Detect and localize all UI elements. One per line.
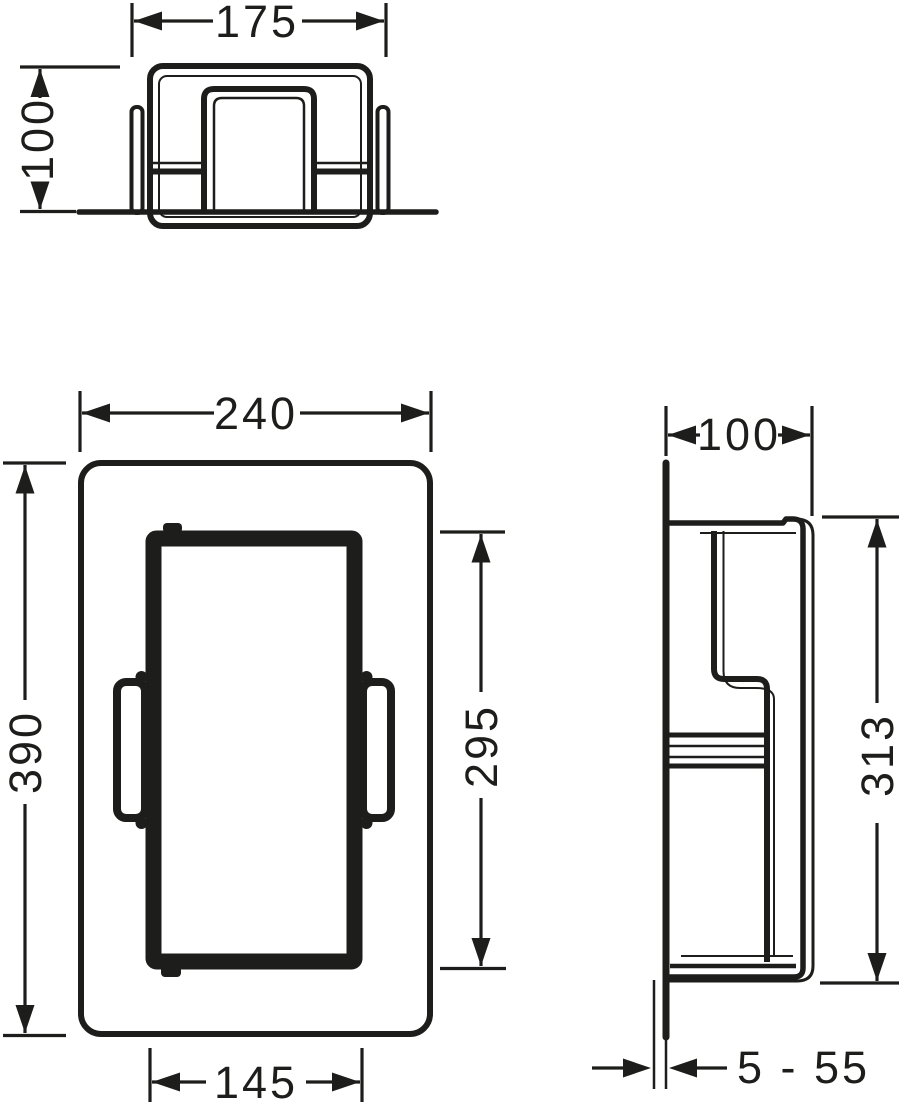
arrowhead-down: [16, 1005, 35, 1033]
front-top-tab: [163, 523, 182, 533]
top-flange-left: [132, 107, 143, 213]
front-clip-right-lug-top: [361, 671, 373, 683]
front-view: 240 390 295 145: [0, 388, 507, 1108]
front-outer-frame: [81, 463, 430, 1034]
dim-label: 240: [214, 388, 298, 439]
top-center-recess-outer: [204, 89, 314, 214]
side-body-outline-thick: [667, 519, 803, 977]
side-view: 100 313 5 - 55: [592, 406, 902, 1093]
arrowhead-right: [401, 404, 429, 423]
front-clip-right: [363, 682, 391, 818]
dim-label: 295: [456, 704, 507, 788]
top-view: 175 100: [12, 0, 436, 226]
dim-label: 100: [697, 409, 781, 460]
dim-front-opening-width: 145: [150, 1048, 362, 1108]
top-view-drawing: [79, 66, 436, 226]
drawing-canvas: 175 100: [0, 0, 902, 1110]
dim-label: 175: [215, 0, 299, 47]
arrowhead-up: [472, 535, 491, 563]
arrowhead-down: [472, 938, 491, 966]
arrowhead-down: [868, 953, 887, 981]
arrowhead-down: [31, 182, 50, 210]
dim-side-depth: 100: [666, 406, 812, 516]
front-clip-left-lug-bottom: [136, 817, 148, 829]
dim-label: 5 - 55: [737, 1042, 870, 1093]
dim-front-outer-height: 390: [0, 463, 66, 1036]
arrowhead-left: [152, 1073, 180, 1092]
dim-label: 313: [852, 713, 902, 797]
arrowhead-left: [134, 12, 162, 31]
dim-side-tile-range: 5 - 55: [592, 1042, 870, 1093]
arrowhead-left: [669, 1059, 697, 1078]
dim-side-body-height: 313: [820, 517, 902, 983]
front-niche-opening-frame: [154, 539, 355, 962]
arrowhead-right: [782, 426, 810, 445]
arrowhead-up: [868, 520, 887, 548]
front-clip-left: [117, 682, 145, 818]
dim-label: 145: [214, 1057, 298, 1108]
arrowhead-left: [668, 426, 696, 445]
dim-front-outer-width: 240: [80, 388, 431, 452]
arrowhead-up: [31, 69, 50, 97]
top-flange-right: [378, 107, 389, 213]
side-body-outline-outer: [668, 519, 813, 981]
arrowhead-left: [82, 404, 110, 423]
dim-label: 390: [0, 710, 51, 794]
side-view-drawing: [654, 463, 813, 1089]
arrowhead-right: [332, 1073, 360, 1092]
arrowhead-right: [356, 12, 384, 31]
top-center-recess-inner: [214, 98, 304, 214]
arrowhead-right: [623, 1059, 651, 1078]
front-clip-left-lug-top: [136, 671, 148, 683]
dim-top-width: 175: [132, 0, 386, 57]
front-bottom-tab: [161, 966, 181, 977]
arrowhead-up: [16, 466, 35, 494]
front-clip-right-lug-bottom: [361, 817, 373, 829]
dim-top-height: 100: [12, 67, 120, 212]
dim-label: 100: [12, 97, 63, 181]
dim-front-opening-height: 295: [440, 532, 507, 969]
front-view-drawing: [81, 463, 430, 1034]
